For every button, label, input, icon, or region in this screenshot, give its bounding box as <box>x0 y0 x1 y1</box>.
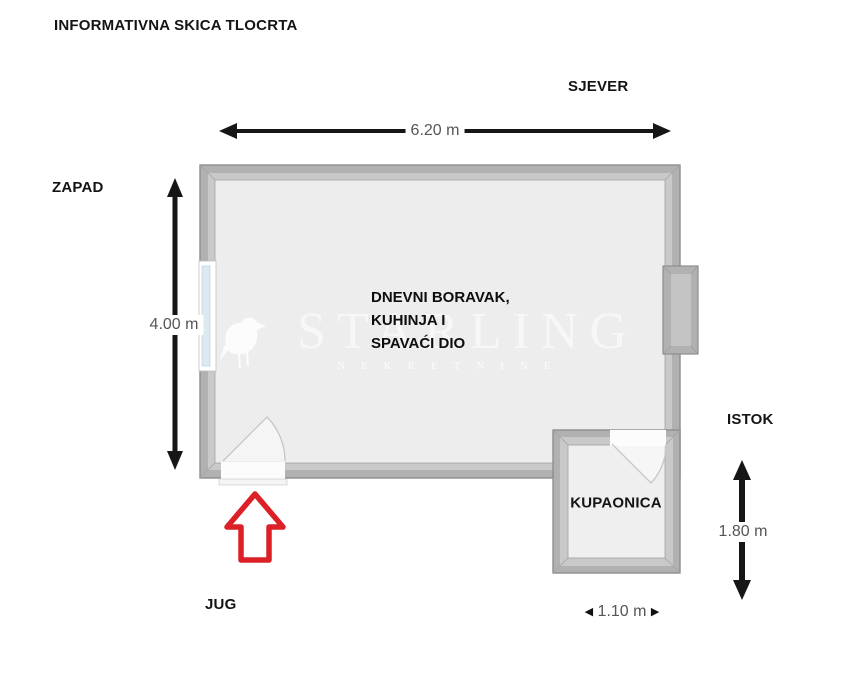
main-room-label-line3: SPAVAĆI DIO <box>371 332 510 355</box>
main-room-label-line2: KUHINJA I <box>371 309 510 332</box>
compass-west-label: ZAPAD <box>52 179 104 196</box>
main-room-label: DNEVNI BORAVAK, KUHINJA I SPAVAĆI DIO <box>371 286 510 355</box>
floor-plan-sketch: STARLING NEKRETNINE INFORMATIVNA SKICA T… <box>0 0 853 690</box>
entrance-direction-arrow-icon <box>227 494 283 560</box>
main-room-label-line1: DNEVNI BORAVAK, <box>371 286 510 309</box>
dimension-bottom: ◀ 1.10 m ▶ <box>580 602 665 622</box>
triangle-left-icon: ◀ <box>585 606 593 618</box>
page-title: INFORMATIVNA SKICA TLOCRTA <box>54 17 298 34</box>
dimension-bottom-value: 1.10 m <box>598 603 647 620</box>
dimension-left-value: 4.00 m <box>145 315 204 335</box>
bathroom-label: KUPAONICA <box>570 495 662 512</box>
compass-east-label: ISTOK <box>727 411 774 428</box>
compass-north-label: SJEVER <box>568 78 628 95</box>
dimension-right-value: 1.80 m <box>714 522 773 542</box>
dimension-top-value: 6.20 m <box>406 121 465 141</box>
triangle-right-icon: ▶ <box>651 606 659 618</box>
compass-south-label: JUG <box>205 596 236 613</box>
entrance-threshold <box>219 479 287 485</box>
east-wall-protrusion <box>663 266 698 354</box>
